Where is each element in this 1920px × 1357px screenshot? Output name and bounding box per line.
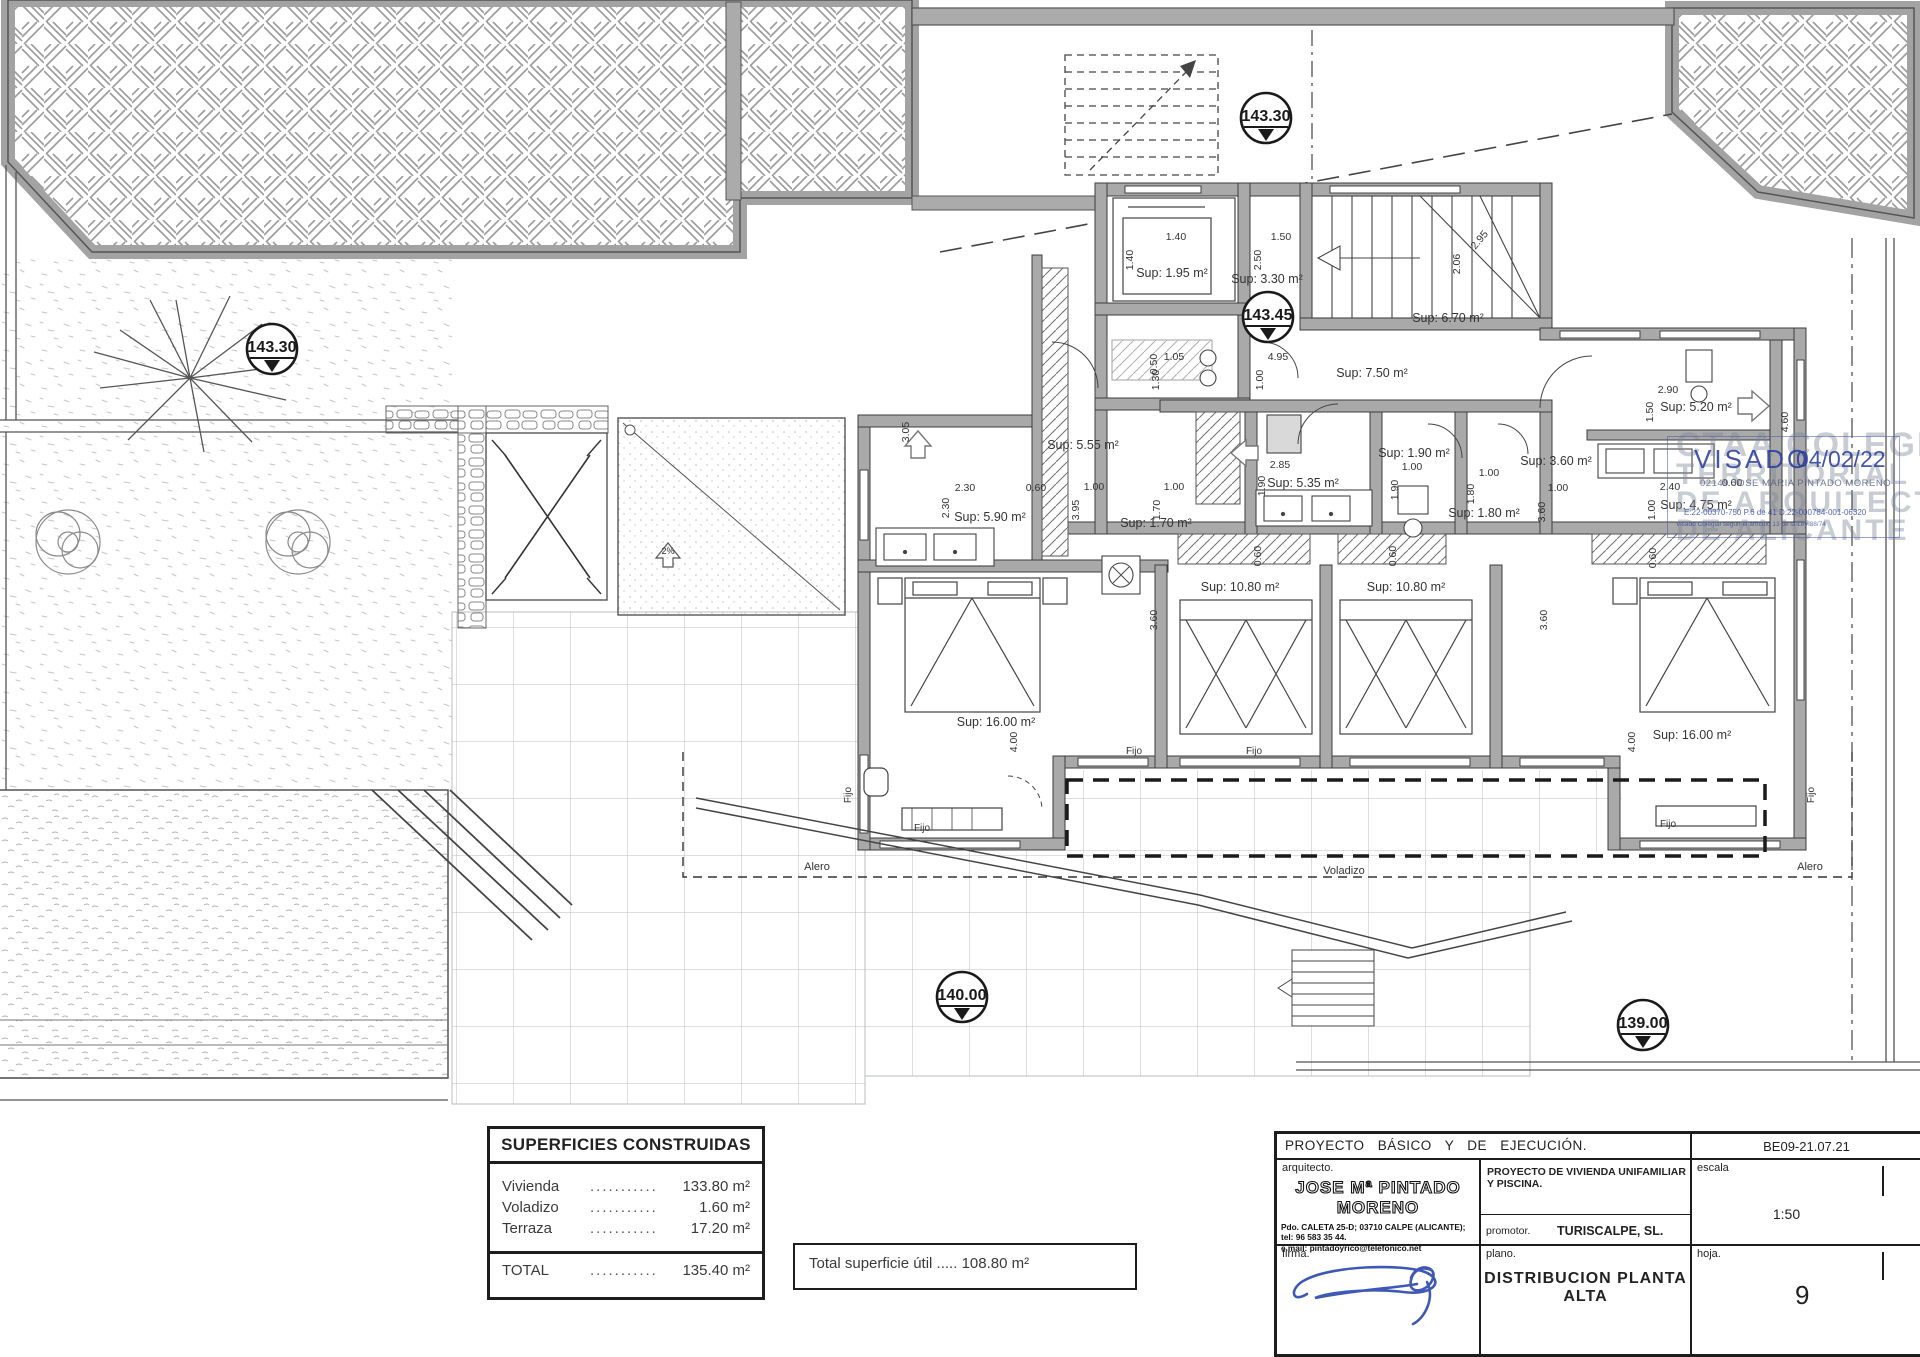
elevator xyxy=(1113,198,1235,301)
room-label: Sup: 3.30 m² xyxy=(1231,272,1303,286)
dim: 4.00 xyxy=(1008,732,1020,753)
level-143.45: 143.45 xyxy=(1243,292,1293,342)
signature xyxy=(1285,1260,1465,1350)
room-label: Sup: 5.35 m² xyxy=(1267,476,1339,490)
floor-plan-page: { "drawing": { "type": "architectural-fl… xyxy=(0,0,1920,1280)
room-label: Sup: 10.80 m² xyxy=(1367,580,1446,594)
useful-area-text: Total superficie útil ..... 108.80 m² xyxy=(809,1255,1029,1272)
slope-label: 2% xyxy=(661,546,674,556)
dim: 2.85 xyxy=(1270,459,1291,471)
dim: 2.90 xyxy=(1658,384,1679,396)
level-139.00: 139.00 xyxy=(1618,1000,1668,1050)
dim: 3.60 xyxy=(1536,502,1548,523)
architect-address: Pdo. CALETA 25-D; 03710 CALPE (ALICANTE)… xyxy=(1281,1222,1477,1243)
fijo-label: Fijo xyxy=(1246,746,1263,757)
dim: 0.50 xyxy=(1148,354,1160,375)
fijo-label: Fijo xyxy=(1806,787,1817,804)
areas-table-title: SUPERFICIES CONSTRUIDAS xyxy=(490,1129,762,1164)
stamp-date: 04/02/22 xyxy=(1796,446,1886,473)
fijo-label: Fijo xyxy=(1660,819,1677,830)
dim: 2.30 xyxy=(955,482,976,494)
dim: 1.40 xyxy=(1124,250,1136,271)
roof-stair-dashed xyxy=(1065,55,1218,175)
exterior-stairs xyxy=(1278,950,1374,1026)
dim: 2.06 xyxy=(1451,254,1463,275)
room-label: Sup: 7.50 m² xyxy=(1336,366,1408,380)
room-label: Sup: 3.60 m² xyxy=(1520,454,1592,468)
sheet-label: hoja. xyxy=(1692,1246,1920,1260)
built-areas-table: SUPERFICIES CONSTRUIDAS Vivienda .......… xyxy=(487,1126,765,1300)
signature-label: firma. xyxy=(1277,1246,1479,1260)
fijo-label: Fijo xyxy=(1126,746,1143,757)
room-label: Sup: 1.80 m² xyxy=(1448,506,1520,520)
room-label: Sup: 10.80 m² xyxy=(1201,580,1280,594)
dim: 1.00 xyxy=(1402,461,1423,473)
svg-text:143.30: 143.30 xyxy=(248,339,297,356)
dim: 3.60 xyxy=(1538,610,1550,631)
alero-label: Alero xyxy=(1797,861,1823,873)
dim: 0.60 xyxy=(1252,546,1264,567)
promotor-label: promotor. xyxy=(1481,1225,1530,1237)
table-row: Voladizo ............ 1.60 m² xyxy=(502,1199,750,1216)
dim: 2.30 xyxy=(940,498,952,519)
level-143.30-left: 143.30 xyxy=(247,324,297,374)
stamp-visado: VISADO xyxy=(1694,444,1810,475)
dim: 0.60 xyxy=(1387,546,1399,567)
fijo-label: Fijo xyxy=(914,823,931,834)
svg-text:139.00: 139.00 xyxy=(1619,1015,1668,1032)
floor-plan-drawing: Sup: 1.95 m² Sup: 3.30 m² Sup: 6.70 m² S… xyxy=(0,0,1920,1280)
voladizo-label: Voladizo xyxy=(1323,865,1365,877)
room-label: Sup: 1.90 m² xyxy=(1378,446,1450,460)
dim: 1.90 xyxy=(1389,480,1401,501)
dim: 1.00 xyxy=(1548,482,1569,494)
dim: 1.50 xyxy=(1271,231,1292,243)
svg-text:140.00: 140.00 xyxy=(938,987,987,1004)
svg-text:143.30: 143.30 xyxy=(1242,108,1291,125)
room-label: Sup: 5.20 m² xyxy=(1660,400,1732,414)
fijo-label: Fijo xyxy=(843,787,854,804)
level-143.30-top: 143.30 xyxy=(1241,93,1291,143)
dim: 4.95 xyxy=(1268,351,1289,363)
table-row: Terraza ............ 17.20 m² xyxy=(502,1220,750,1237)
interior-stairs xyxy=(1312,196,1540,318)
sand-planter xyxy=(618,418,845,615)
title-block: PROYECTO BÁSICO Y DE EJECUCIÓN. BE09-21.… xyxy=(1274,1131,1920,1357)
dim: 3.60 xyxy=(1148,610,1160,631)
dim: 1.00 xyxy=(1254,370,1266,391)
room-label: Sup: 16.00 m² xyxy=(1653,728,1732,742)
svg-text:143.45: 143.45 xyxy=(1244,307,1293,324)
dim: 1.05 xyxy=(1164,351,1185,363)
dim: 1.90 xyxy=(1256,476,1268,497)
architect-label: arquitecto. xyxy=(1277,1160,1479,1174)
room-label: Sup: 16.00 m² xyxy=(957,715,1036,729)
dim: 2.50 xyxy=(1252,250,1264,271)
table-total-row: TOTAL ............ 135.40 m² xyxy=(490,1251,762,1293)
room-label: Sup: 5.55 m² xyxy=(1047,438,1119,452)
project-code: BE09-21.07.21 xyxy=(1692,1134,1920,1154)
dim: 0.60 xyxy=(1647,548,1659,569)
dim: 1.00 xyxy=(1084,481,1105,493)
dim: 1.50 xyxy=(1644,402,1656,423)
stamp-fine-print: Visado Colegial según el artículo 13 de … xyxy=(1676,521,1826,528)
stamp-architect-number: 02149 JOSE MARIA PINTADO MORENO xyxy=(1700,478,1891,489)
dim: 3.95 xyxy=(1070,500,1082,521)
dim: 1.00 xyxy=(1646,500,1658,521)
dim: 0.60 xyxy=(1026,482,1047,494)
sheet-number: 9 xyxy=(1795,1280,1809,1311)
dim: 1.40 xyxy=(1166,231,1187,243)
project-title: PROYECTO BÁSICO Y DE EJECUCIÓN. xyxy=(1277,1134,1690,1153)
terrain-left xyxy=(0,258,452,792)
room-label: Sup: 1.95 m² xyxy=(1136,266,1208,280)
dim: 4.00 xyxy=(1626,732,1638,753)
room-label: Sup: 5.90 m² xyxy=(954,510,1026,524)
dim: 1.00 xyxy=(1164,481,1185,493)
scale-label: escala xyxy=(1692,1160,1920,1174)
scale-value: 1:50 xyxy=(1692,1206,1881,1222)
ground-under-voladizo xyxy=(1065,770,1622,850)
plano-title: DISTRIBUCION PLANTA ALTA xyxy=(1481,1270,1690,1306)
roof-terrace-left xyxy=(8,0,912,252)
dim: 1.70 xyxy=(1151,500,1163,521)
skylight-shaft xyxy=(486,433,607,600)
stamp-refs: E:22-00370-750 P.6 de 41 D:22-000784-001… xyxy=(1684,508,1866,517)
architect-name: JOSE Mª PINTADO MORENO xyxy=(1277,1178,1479,1218)
project-description: PROYECTO DE VIVIENDA UNIFAMILIAR Y PISCI… xyxy=(1481,1160,1690,1190)
dim: 1.00 xyxy=(1479,467,1500,479)
roof-terrace-right xyxy=(1672,8,1914,218)
useful-area-box: Total superficie útil ..... 108.80 m² xyxy=(793,1243,1137,1290)
plano-label: plano. xyxy=(1481,1246,1690,1260)
dim: 1.80 xyxy=(1465,484,1477,505)
level-140.00: 140.00 xyxy=(937,972,987,1022)
table-row: Vivienda ............ 133.80 m² xyxy=(502,1178,750,1195)
room-label: Sup: 6.70 m² xyxy=(1412,311,1484,325)
promotor-name: TURISCALPE, SL. xyxy=(1530,1224,1690,1238)
dim: 3.05 xyxy=(900,422,912,443)
alero-label: Alero xyxy=(804,861,830,873)
